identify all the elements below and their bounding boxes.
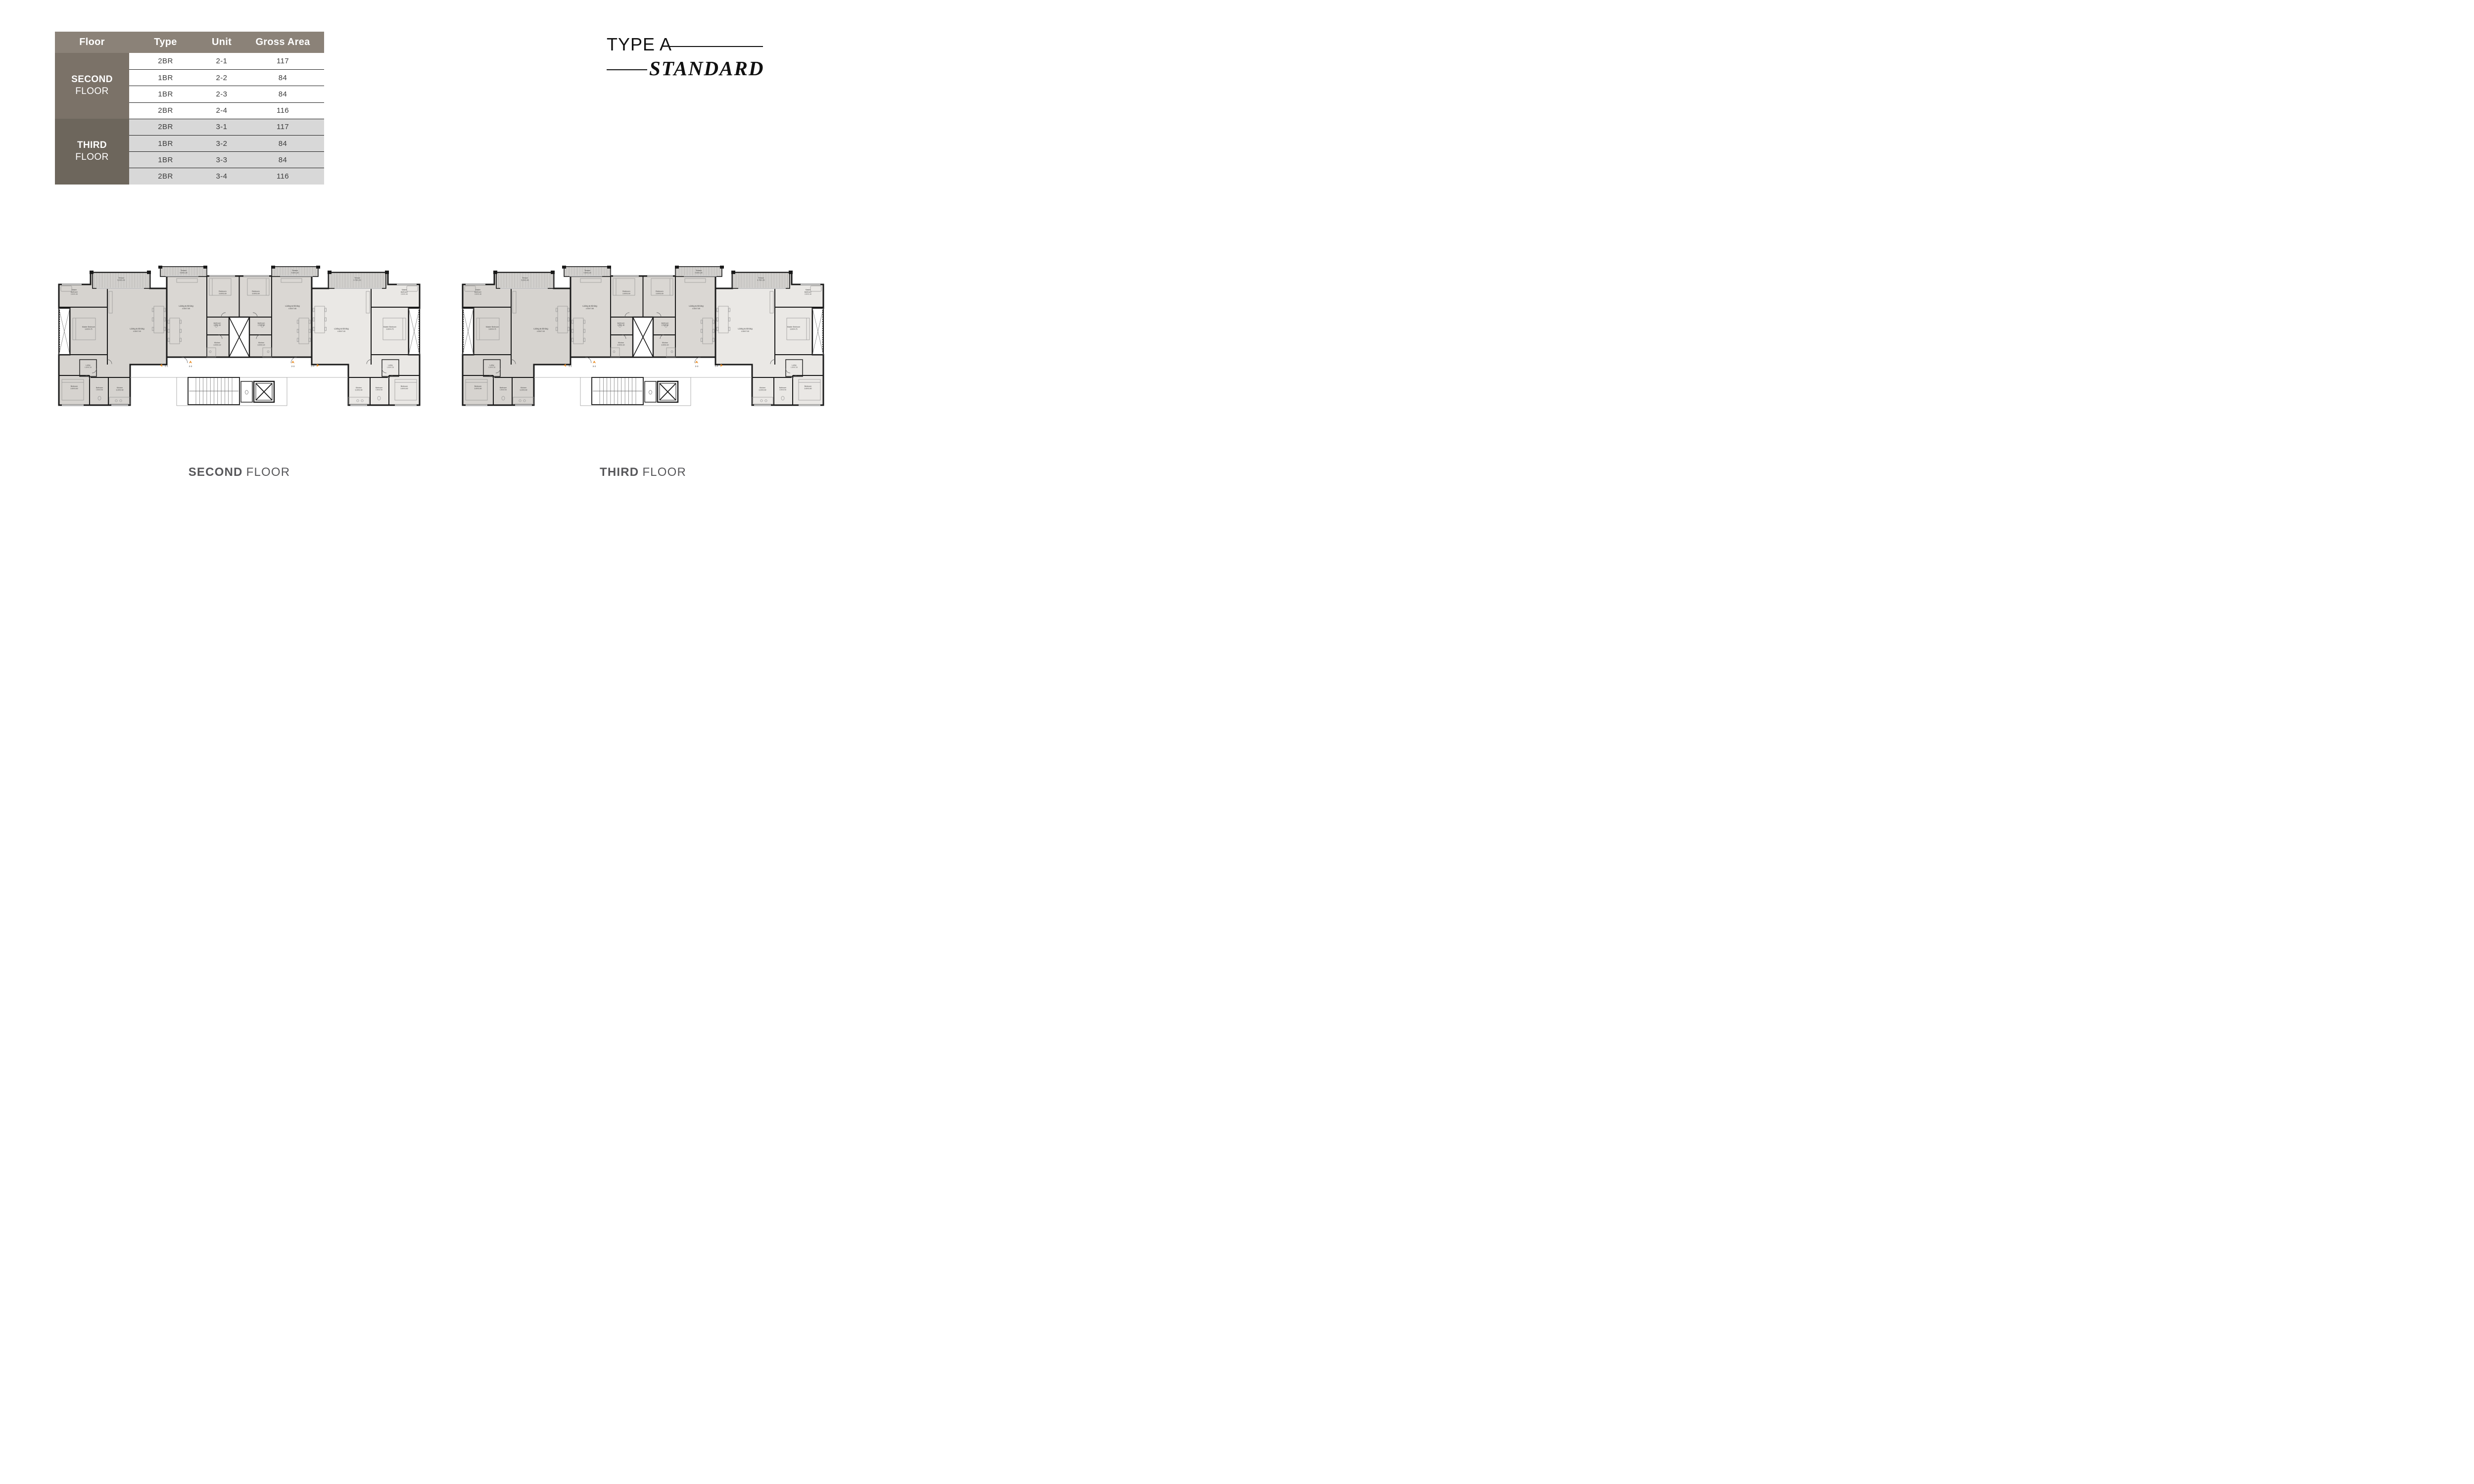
room-label: 3.60X3.60 bbox=[400, 388, 408, 390]
room-label: 1.80X2.60 bbox=[779, 389, 786, 391]
col-header-floor: Floor bbox=[55, 32, 129, 53]
cell-area: 84 bbox=[241, 86, 324, 102]
room-label: 4.50X7.85 bbox=[692, 308, 700, 310]
unit-markers: 3-13-23-33-4 bbox=[564, 361, 723, 368]
room-label: Bedroom bbox=[401, 385, 408, 387]
room-label: 2.25X1.80 bbox=[662, 325, 669, 326]
room-label: 1.50X1.35 bbox=[488, 367, 495, 369]
unit-arrow-icon bbox=[593, 361, 596, 364]
room-label: 2.60X1.80 bbox=[71, 293, 78, 295]
floor-plan-svg: Terrace4.60X1.25Terrace4.60X1.25Bedroom3… bbox=[58, 263, 421, 408]
room-label: Master Bedroom bbox=[486, 326, 499, 328]
cell-unit: 3-2 bbox=[202, 135, 241, 151]
room-label: 3.00X2.20 bbox=[257, 344, 265, 346]
room-label: 2.60X1.80 bbox=[401, 293, 408, 295]
room-label: 3.60X3.60 bbox=[252, 293, 260, 295]
core bbox=[130, 377, 348, 406]
core-wc bbox=[241, 381, 252, 402]
cell-area: 116 bbox=[241, 168, 324, 184]
page: Floor Type Unit Gross Area SECOND FLOOR … bbox=[0, 0, 880, 495]
unit-arrow-icon bbox=[291, 361, 294, 364]
room-label: Bedroom bbox=[805, 385, 812, 387]
room-label: Terrace bbox=[584, 270, 590, 272]
room-label: 3.60X4.75 bbox=[488, 328, 496, 330]
col-header-grossarea: Gross Area bbox=[241, 32, 324, 53]
cell-unit: 3-3 bbox=[202, 151, 241, 168]
room-label: 2.25X1.80 bbox=[258, 325, 265, 326]
floor-label-bold: THIRD bbox=[77, 139, 107, 151]
room-label: Kitchen bbox=[356, 387, 362, 389]
room-label: Bedroom bbox=[656, 290, 663, 292]
cell-area: 84 bbox=[241, 135, 324, 151]
cell-type: 1BR bbox=[129, 135, 202, 151]
cell-type: 1BR bbox=[129, 151, 202, 168]
room-label: 3.60X4.75 bbox=[386, 328, 393, 330]
room-label: 2.60X1.80 bbox=[805, 293, 811, 295]
unit-arrow-icon bbox=[695, 361, 698, 364]
cell-area: 84 bbox=[241, 69, 324, 86]
title-rule-top bbox=[668, 46, 763, 47]
unit-schedule-table: Floor Type Unit Gross Area SECOND FLOOR … bbox=[55, 32, 324, 185]
cell-unit: 3-1 bbox=[202, 119, 241, 135]
room-label: Kitchen bbox=[117, 387, 123, 389]
caption-light: FLOOR bbox=[642, 465, 686, 479]
cell-unit: 2-2 bbox=[202, 69, 241, 86]
room-label: Living & Dining bbox=[334, 327, 349, 330]
cell-type: 2BR bbox=[129, 168, 202, 184]
room-label: Master bbox=[806, 289, 811, 291]
caption-light: FLOOR bbox=[246, 465, 290, 479]
unit-marker: 2-3 bbox=[291, 365, 295, 368]
cell-type: 2BR bbox=[129, 53, 202, 69]
room-label: Master bbox=[476, 289, 481, 291]
room-label: 1.50X1.35 bbox=[387, 367, 394, 369]
room-label: 5.25X1.40 bbox=[117, 279, 125, 281]
room-label: 3.60X3.60 bbox=[219, 293, 227, 295]
room-label: 4.75X1.50 bbox=[757, 279, 764, 281]
room-label: 4.60X1.25 bbox=[291, 272, 298, 274]
room-label: Living & Dining bbox=[533, 327, 548, 330]
col-header-type: Type bbox=[129, 32, 202, 53]
room-label: 4.60X1.25 bbox=[695, 272, 702, 274]
unit-marker: 3-4 bbox=[714, 365, 718, 367]
cell-area: 117 bbox=[241, 119, 324, 135]
core-wc bbox=[645, 381, 656, 402]
cell-unit: 2-1 bbox=[202, 53, 241, 69]
room-label: 3.00X2.20 bbox=[661, 344, 668, 346]
unit-marker: 3-2 bbox=[593, 365, 596, 368]
room-label: Living & Dining bbox=[689, 305, 704, 307]
room-label: 4.60X1.25 bbox=[180, 272, 187, 274]
cell-area: 116 bbox=[241, 102, 324, 119]
room-label: Master Bedroom bbox=[82, 326, 95, 328]
room-label: 3.60X3.60 bbox=[804, 388, 811, 390]
cell-type: 2BR bbox=[129, 102, 202, 119]
cell-area: 117 bbox=[241, 53, 324, 69]
floor-label-light: FLOOR bbox=[75, 151, 108, 163]
room-label: Terrace bbox=[758, 277, 764, 279]
room-label: Bedroom bbox=[252, 290, 259, 292]
page-title: TYPE A bbox=[607, 36, 672, 53]
room-label: Living & Dining bbox=[582, 305, 597, 307]
room-label: 3.20X2.60 bbox=[759, 389, 766, 391]
room-label: Master bbox=[72, 289, 77, 291]
room-label: 3.60X3.60 bbox=[474, 388, 481, 390]
room-label: 3.20X2.60 bbox=[520, 389, 527, 391]
room-label: 1.50X1.35 bbox=[85, 367, 92, 369]
room-label: Kitchen bbox=[258, 342, 264, 344]
floor-label-bold: SECOND bbox=[71, 74, 113, 86]
floor-plan-third: Terrace4.60X1.25Terrace4.60X1.25Bedroom3… bbox=[462, 263, 824, 408]
room-label: Terrace bbox=[522, 277, 528, 279]
floor-label-light: FLOOR bbox=[75, 86, 108, 97]
room-label: Terrace bbox=[118, 277, 124, 279]
room-label: 3.00X2.20 bbox=[617, 344, 624, 346]
room-label: 3.00X2.20 bbox=[213, 344, 221, 346]
room-label: 3.60X3.60 bbox=[622, 293, 630, 295]
room-label: 4.50X7.00 bbox=[337, 330, 345, 332]
room-label: 4.60X1.25 bbox=[583, 272, 591, 274]
col-header-unit: Unit bbox=[202, 32, 241, 53]
caption-second-floor: SECONDFLOOR bbox=[58, 465, 421, 479]
room-label: 1.80X2.60 bbox=[500, 389, 507, 391]
room-label: Terrace bbox=[354, 277, 360, 279]
caption-bold: SECOND bbox=[189, 465, 243, 479]
room-label: Bedroom bbox=[622, 290, 630, 292]
title-rule-bottom bbox=[607, 69, 647, 70]
room-label: Terrace bbox=[696, 270, 702, 272]
room-label: 4.50X7.00 bbox=[741, 330, 749, 332]
room-label: Kitchen bbox=[214, 342, 220, 344]
room-label: 3.20X2.60 bbox=[116, 389, 123, 391]
room-label: 5.25X1.40 bbox=[521, 279, 528, 281]
cell-type: 2BR bbox=[129, 119, 202, 135]
room-label: 3.60X4.75 bbox=[790, 328, 797, 330]
room-label: Living & Dining bbox=[130, 327, 144, 330]
room-label: 1.50X1.35 bbox=[791, 367, 798, 369]
unit-markers: 2-12-22-32-4 bbox=[160, 361, 319, 368]
unit-arrow-icon bbox=[189, 361, 192, 364]
room-label: 4.50X7.85 bbox=[288, 308, 296, 310]
room-label: 4.50X7.85 bbox=[182, 308, 190, 310]
cell-type: 1BR bbox=[129, 69, 202, 86]
room-label: Terrace bbox=[292, 270, 298, 272]
room-label: Bedroom bbox=[219, 290, 226, 292]
page-subtitle: STANDARD bbox=[649, 58, 764, 79]
room-label: Master bbox=[402, 289, 407, 291]
room-label: 4.50X7.00 bbox=[133, 330, 141, 332]
floor-group-second: SECOND FLOOR bbox=[55, 53, 129, 119]
caption-third-floor: THIRDFLOOR bbox=[462, 465, 824, 479]
floor-group-third: THIRD FLOOR bbox=[55, 119, 129, 185]
room-label: Bedroom bbox=[71, 385, 78, 387]
room-label: 3.60X3.60 bbox=[70, 388, 78, 390]
room-label: 3.60X4.75 bbox=[85, 328, 92, 330]
unit-marker: 3-3 bbox=[695, 365, 699, 368]
room-label: 2.25X1.80 bbox=[214, 325, 221, 326]
room-label: 1.80X2.60 bbox=[96, 389, 103, 391]
cell-unit: 2-4 bbox=[202, 102, 241, 119]
room-label: Kitchen bbox=[662, 342, 668, 344]
room-label: 2.60X1.80 bbox=[475, 293, 481, 295]
room-label: 3.20X2.60 bbox=[355, 389, 362, 391]
room-label: Kitchen bbox=[521, 387, 526, 389]
room-label: 4.50X7.00 bbox=[537, 330, 545, 332]
caption-bold: THIRD bbox=[600, 465, 639, 479]
cell-unit: 2-3 bbox=[202, 86, 241, 102]
room-label: 1.80X2.60 bbox=[376, 389, 382, 391]
room-label: Living & Dining bbox=[738, 327, 753, 330]
room-label: Kitchen bbox=[760, 387, 765, 389]
floor-plan-second: Terrace4.60X1.25Terrace4.60X1.25Bedroom3… bbox=[58, 263, 421, 408]
unit-marker: 3-1 bbox=[569, 365, 572, 367]
cell-area: 84 bbox=[241, 151, 324, 168]
room-label: 4.50X7.85 bbox=[586, 308, 594, 310]
floor-plan-svg: Terrace4.60X1.25Terrace4.60X1.25Bedroom3… bbox=[462, 263, 824, 408]
unit-marker: 2-2 bbox=[189, 365, 192, 368]
core bbox=[534, 377, 752, 406]
room-label: 4.75X1.50 bbox=[353, 279, 361, 281]
room-label: 3.60X3.60 bbox=[656, 293, 664, 295]
room-label: Master Bedroom bbox=[383, 326, 397, 328]
room-label: Living & Dining bbox=[179, 305, 193, 307]
room-label: Kitchen bbox=[618, 342, 624, 344]
cell-unit: 3-4 bbox=[202, 168, 241, 184]
room-label: Living & Dining bbox=[285, 305, 300, 307]
room-label: 2.25X1.80 bbox=[618, 325, 625, 326]
unit-marker: 2-4 bbox=[311, 365, 314, 367]
room-label: Bedroom bbox=[475, 385, 482, 387]
room-label: Master Bedroom bbox=[787, 326, 801, 328]
cell-type: 1BR bbox=[129, 86, 202, 102]
unit-marker: 2-1 bbox=[165, 365, 168, 367]
room-label: Terrace bbox=[181, 270, 187, 272]
